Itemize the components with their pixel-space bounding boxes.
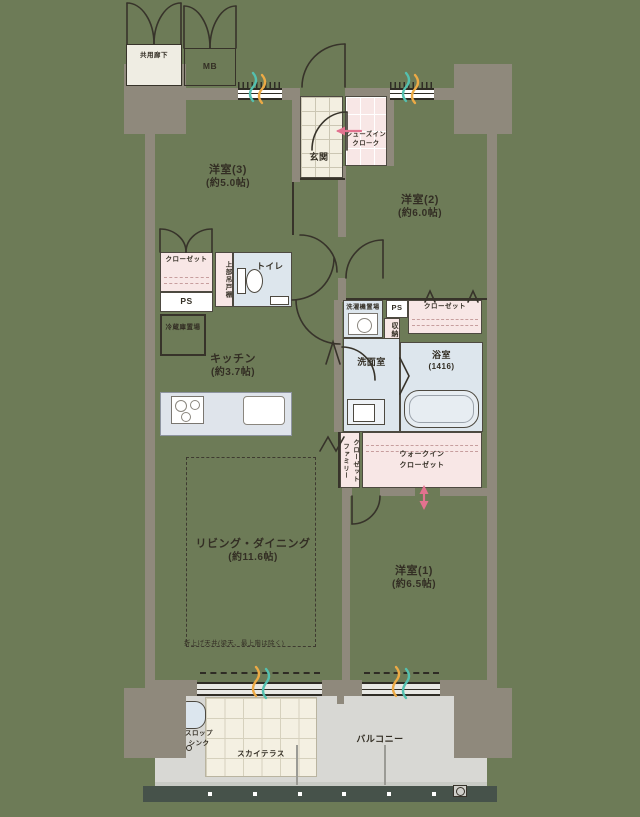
west3-label: 洋室(3) (約5.0帖)	[158, 163, 298, 190]
walkin-closet-label: ウォークイン クローゼット	[362, 449, 482, 471]
door-arc-toilet	[292, 258, 334, 300]
slop-sink-label: スロップ シンク	[176, 729, 222, 749]
balcony-drain-icon	[453, 785, 467, 797]
window-west3	[238, 88, 282, 100]
burner-icon	[175, 400, 187, 412]
pillar-bottom-right	[454, 688, 512, 758]
kitchen-size: (約3.7帖)	[168, 366, 298, 379]
drain-circle-icon	[456, 787, 465, 796]
west1-name: 洋室(1)	[344, 564, 484, 578]
wall-outer-left	[145, 130, 155, 690]
wall-bottom	[440, 680, 487, 696]
floor-plan: 共用廊下 MB シューズイン クローク 玄関 クローゼット PS 冷蔵庫置場 上…	[0, 0, 640, 817]
curtain-box-line	[364, 672, 439, 674]
door-arc-storage	[154, 3, 181, 44]
wall-top	[155, 88, 238, 100]
kitchen-sink-icon	[243, 396, 285, 425]
family-closet-label-col1: ファミリー	[340, 436, 350, 486]
washer-pan-icon	[348, 313, 378, 335]
wall-west1-north	[342, 488, 352, 496]
wall-west1-north	[440, 488, 487, 496]
railing-post	[342, 792, 346, 796]
door-arc-meterbox	[210, 6, 236, 48]
closet-shelf-line	[366, 445, 478, 446]
slop-sink-line2: シンク	[176, 739, 222, 749]
door-arc-storage	[127, 3, 154, 44]
door-arc-entrance	[302, 44, 345, 87]
balcony-label: バルコニー	[340, 734, 420, 746]
toilet-bowl-icon	[246, 269, 263, 293]
kitchen-label: キッチン (約3.7帖)	[168, 352, 298, 379]
bathroom-name: 浴室	[400, 350, 483, 362]
west1-size: (約6.5帖)	[344, 578, 484, 591]
walkin-closet-line2: クローゼット	[362, 460, 482, 471]
west1-label: 洋室(1) (約6.5帖)	[344, 564, 484, 591]
sky-terrace-label: スカイテラス	[214, 749, 308, 759]
family-closet-label-col2: クローゼット	[350, 435, 360, 487]
washer-drum-icon	[357, 318, 372, 333]
railing-post	[387, 792, 391, 796]
curtain-box-line	[200, 672, 320, 674]
shoe-cloak-label: シューズイン クローク	[341, 130, 391, 149]
meter-box-label: MB	[184, 61, 236, 72]
railing-post	[432, 792, 436, 796]
wall-bottom	[322, 680, 362, 696]
bathroom-label: 浴室 (1416)	[400, 350, 483, 372]
west3-name: 洋室(3)	[158, 163, 298, 177]
door-arc-west2	[346, 240, 383, 278]
fridge-space-box	[160, 314, 206, 356]
pipe-space-right-label: PS	[386, 303, 408, 313]
toilet-tank-icon	[237, 268, 246, 294]
vanity-sink-icon	[353, 404, 375, 422]
wall-balcony-stub	[337, 696, 344, 704]
shoe-cloak-line1: シューズイン	[341, 130, 391, 139]
entrance-label: 玄関	[296, 152, 342, 164]
railing-post	[208, 792, 212, 796]
slop-sink-icon	[184, 701, 206, 729]
wall-bottom	[155, 680, 197, 696]
closet-left-label: クローゼット	[161, 256, 212, 264]
living-name: リビング・ダイニング	[168, 537, 338, 551]
closet-shelf-line	[164, 277, 209, 278]
living-size: (約11.6帖)	[168, 551, 338, 564]
burner-icon	[190, 400, 200, 410]
west3-size: (約5.0帖)	[158, 177, 298, 190]
closet-shelf-line	[412, 319, 478, 320]
ceiling-note: 折上げ天井(梁天、最上階は除く)	[184, 640, 324, 648]
kitchen-name: キッチン	[168, 352, 298, 366]
west2-label: 洋室(2) (約6.0帖)	[350, 193, 490, 220]
walkin-closet-line1: ウォークイン	[362, 449, 482, 460]
upper-cabinet: 上部吊戸棚	[215, 252, 233, 307]
common-storage-box	[126, 44, 182, 86]
wall-washroom-west	[334, 300, 342, 432]
living-label: リビング・ダイニング (約11.6帖)	[168, 537, 338, 564]
vanity-icon	[347, 399, 385, 425]
wall-west1-west	[342, 496, 350, 690]
wall-west2-west	[338, 278, 346, 302]
railing-post	[298, 792, 302, 796]
entrance-step-line	[300, 178, 345, 180]
laundry-space-label: 洗濯機置場	[343, 304, 383, 312]
slop-sink-line1: スロップ	[176, 729, 222, 739]
door-arc-closet-left	[186, 229, 212, 252]
west2-name: 洋室(2)	[350, 193, 490, 207]
pipe-space-left-label: PS	[160, 296, 213, 307]
burner-icon	[181, 412, 191, 422]
closet-shelf-line	[412, 325, 478, 326]
common-storage-label: 共用廊下	[126, 52, 182, 60]
toilet-shelf-icon	[270, 296, 289, 305]
closet-right-label: クローゼット	[408, 303, 482, 311]
door-arc-west3	[300, 235, 337, 272]
window-living	[197, 682, 322, 696]
bathtub-inner-icon	[409, 395, 474, 423]
closet-shelf-line	[164, 283, 209, 284]
arrow-head-walkin-down	[420, 501, 429, 510]
entrance-tile-floor	[300, 96, 343, 178]
bathtub-icon	[404, 390, 479, 428]
railing-post	[253, 792, 257, 796]
washroom-label: 洗面室	[343, 357, 400, 369]
stove-icon	[171, 396, 204, 424]
door-arc-meterbox	[184, 6, 210, 48]
door-arc-west1	[352, 496, 380, 524]
bathroom-size: (1416)	[400, 362, 483, 372]
wall-west1-north	[380, 488, 415, 496]
balcony-railing	[143, 786, 497, 802]
shoe-cloak-line2: クローク	[341, 139, 391, 148]
window-west1	[362, 682, 440, 696]
balcony-divider-post	[384, 745, 386, 785]
fridge-space-label: 冷蔵庫置場	[160, 324, 206, 332]
west2-size: (約6.0帖)	[350, 207, 490, 220]
window-west2	[390, 88, 434, 100]
door-arc-closet-left	[160, 229, 186, 252]
wall-top	[434, 88, 487, 100]
